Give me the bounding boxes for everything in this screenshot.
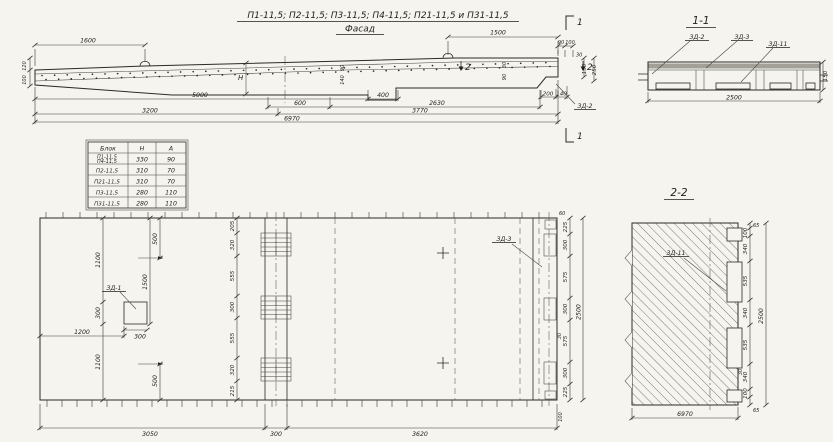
cell-a: 90 — [167, 157, 175, 164]
edge-block — [727, 262, 742, 302]
cell-h: 310 — [136, 168, 148, 175]
part-label: ЗД-11 — [769, 41, 788, 48]
dim-line — [40, 404, 557, 430]
blocks-table: Блок Н А П1-11,5 П4-11,5 330 90 П2-11,5 … — [86, 140, 188, 210]
cut-number: 1 — [577, 18, 583, 28]
dim-label: 30 — [738, 369, 744, 375]
cell-a: 110 — [165, 201, 177, 208]
dim-label: 600 — [294, 100, 306, 107]
dim-label: 30 — [576, 53, 582, 59]
edge-block — [727, 390, 742, 402]
cell-h: 330 — [136, 157, 148, 164]
table-row: П1-11,5 П4-11,5 330 90 — [97, 155, 175, 166]
grid-block-lines — [261, 233, 291, 256]
break-marks — [625, 250, 632, 389]
dim-label: 6970 — [677, 411, 693, 418]
block — [806, 83, 815, 89]
panel-outline — [35, 58, 558, 100]
dim-label: 5000 — [192, 92, 208, 99]
block — [656, 83, 690, 89]
dim-label: 535 — [743, 339, 749, 350]
slab-shading — [648, 64, 820, 69]
cut-number: 2 — [587, 63, 593, 73]
dim-label: 65 — [753, 223, 759, 229]
dim-label: 2500 — [726, 95, 742, 102]
block-name: П2-11,5 — [96, 169, 119, 175]
edge-block — [545, 391, 556, 399]
dim-label: 65 — [753, 408, 759, 414]
embedded-grid-blocks — [261, 233, 291, 381]
dim-label: 2500 — [758, 308, 765, 324]
table-header: Блок — [100, 146, 116, 153]
break-mark-line — [625, 250, 632, 389]
elevation-view: 1600 1500 120 100 90 140 Н 30 90 90 100 … — [22, 16, 598, 142]
cell-h: 310 — [136, 179, 148, 186]
dim-label: 300 — [230, 301, 236, 312]
dim-label: 30 — [557, 333, 563, 339]
dim-label: 225 — [563, 386, 569, 397]
dim-label: 300 — [270, 431, 282, 438]
edge-block — [545, 220, 556, 229]
mid-rib-lines — [265, 218, 533, 400]
leader-line — [652, 41, 690, 74]
edge-block — [544, 362, 556, 384]
dim-label: 3620 — [412, 431, 428, 438]
section-1-1-view: 1-1 ЗД-2 ЗД-3 ЗД-11 2500 150 — [638, 15, 829, 103]
dim-label: 320 — [230, 239, 236, 250]
dim-label: 1100 — [95, 354, 102, 370]
dim-label: 300 — [95, 307, 102, 319]
edge-block — [544, 234, 556, 256]
block-name: П21-11,5 — [94, 180, 120, 186]
dim-label: 100 — [558, 412, 564, 422]
dim-label: 555 — [230, 332, 236, 343]
rebar-dots-row-1 — [42, 63, 552, 76]
part-label: ЗД-3 — [735, 34, 750, 41]
cut-flag — [566, 128, 574, 142]
edge-block — [727, 228, 742, 241]
table-header: Н — [140, 146, 145, 153]
dim-label: 300 — [563, 367, 569, 378]
dim-label: 120 — [22, 61, 28, 71]
part-label: ЗД-1 — [107, 285, 122, 292]
drawing-sheet: П1-11,5; П2-11,5; П3-11,5; П4-11,5; П21-… — [0, 0, 833, 442]
part-label: ЗД-11 — [667, 250, 686, 257]
dim-label: 2500 — [576, 304, 583, 320]
hidden-lines — [335, 218, 539, 400]
dim-label: 300 — [563, 303, 569, 314]
edge-block — [544, 298, 556, 320]
section-title: 1-1 — [692, 15, 709, 27]
table-row: П2-11,5 310 70 — [96, 168, 175, 175]
view-label: Фасад — [345, 25, 375, 35]
dim-label: 100 — [743, 388, 749, 399]
cell-h: 280 — [136, 201, 148, 208]
dim-label: 60 — [559, 211, 565, 217]
part-label: ЗД-3 — [497, 236, 512, 243]
dim-label: 535 — [743, 275, 749, 286]
cell-a: 110 — [165, 190, 177, 197]
table-row: П21-11,5 310 70 — [94, 179, 175, 186]
dim-label: 340 — [743, 307, 749, 318]
dim-label: 150 — [823, 70, 829, 81]
edge-block — [727, 328, 742, 368]
leader-line — [512, 244, 542, 267]
weld-tick — [138, 258, 163, 364]
dim-label: 340 — [743, 243, 749, 254]
block-name: П4-11,5 — [97, 159, 117, 165]
dim-label: 300 — [563, 239, 569, 250]
part-label: ЗД-2 — [578, 103, 593, 110]
dim-label: 500 — [152, 375, 159, 387]
table-header: А — [168, 146, 173, 153]
dim-label: 90 — [502, 74, 508, 80]
grid-block-lines — [261, 358, 291, 381]
cut-number: 1 — [577, 132, 583, 142]
dim-label: 3200 — [142, 108, 158, 115]
dim-label: 90 — [340, 65, 346, 71]
table-row: П3-11,5 280 110 — [96, 190, 177, 197]
block — [716, 83, 750, 89]
leader-line — [120, 292, 136, 309]
cell-a: 70 — [167, 179, 175, 186]
dim-label: 575 — [563, 271, 569, 282]
panel-flange-lines — [35, 62, 558, 95]
cut-arrowhead — [459, 67, 464, 72]
drawing-title: П1-11,5; П2-11,5; П3-11,5; П4-11,5; П21-… — [247, 11, 509, 21]
dim-label: 400 — [377, 92, 389, 99]
height-symbol: Н — [238, 74, 244, 82]
dim-label: 3050 — [142, 431, 158, 438]
break-mark-fill — [625, 250, 632, 389]
sheet-title: П1-11,5; П2-11,5; П3-11,5; П4-11,5; П21-… — [237, 11, 519, 35]
bottom-blocks — [656, 83, 815, 89]
dim-label: 140 — [340, 75, 346, 85]
arrowhead — [158, 256, 163, 366]
blueprint-canvas: П1-11,5; П2-11,5; П3-11,5; П4-11,5; П21-… — [0, 0, 833, 442]
dim-label: 2630 — [429, 100, 445, 107]
dim-label: 1100 — [95, 252, 102, 268]
section-2-2-view: 2-2 ЗД-11 65 100 340 535 340 535 340 100… — [625, 187, 766, 420]
dim-label: 300 — [134, 334, 146, 341]
hook-stubs — [638, 74, 828, 81]
dim-label: 320 — [230, 364, 236, 375]
dim-label: 215 — [230, 385, 236, 396]
dim-label: 100 — [743, 227, 749, 238]
cut-number: 2 — [465, 63, 471, 73]
dim-label: 555 — [230, 270, 236, 281]
dim-label: 500 — [152, 233, 159, 245]
rebar-dots-row-2 — [46, 67, 550, 80]
edge-blocks — [544, 220, 556, 399]
plan-view: ЗД-1 ЗД-3 1100 300 1100 1200 300 1500 50… — [40, 211, 583, 438]
zd1-opening — [124, 302, 147, 324]
dim-label: 225 — [563, 221, 569, 232]
cut-flag — [566, 16, 574, 30]
block-name: П31-11,5 — [94, 202, 120, 208]
dim-label: 1500 — [142, 274, 149, 290]
cell-a: 70 — [167, 168, 175, 175]
centre-cross — [437, 247, 449, 369]
dim-label: 575 — [563, 335, 569, 346]
dim-label: 200 — [543, 92, 554, 98]
dim-label: 100 — [22, 75, 28, 85]
section-cut-1-marks: 1 1 — [566, 16, 583, 142]
cell-h: 280 — [136, 190, 148, 197]
dim-label: 250 — [592, 64, 598, 75]
part-label: ЗД-2 — [690, 34, 705, 41]
section-title: 2-2 — [670, 187, 687, 199]
plan-outline — [40, 218, 557, 400]
tick-marks — [46, 212, 542, 407]
dim-label: 1200 — [74, 329, 90, 336]
grid-block-lines — [261, 296, 291, 319]
dim-label: 1500 — [490, 30, 506, 37]
dim-label: 1600 — [80, 38, 96, 45]
block-name: П3-11,5 — [96, 191, 119, 197]
dim-label: 3770 — [412, 108, 428, 115]
dim-label: 205 — [230, 220, 236, 231]
table-row: П31-11,5 280 110 — [94, 201, 177, 208]
dim-label: 30 — [502, 62, 508, 68]
dim-label: 6970 — [284, 116, 300, 123]
block — [770, 83, 791, 89]
